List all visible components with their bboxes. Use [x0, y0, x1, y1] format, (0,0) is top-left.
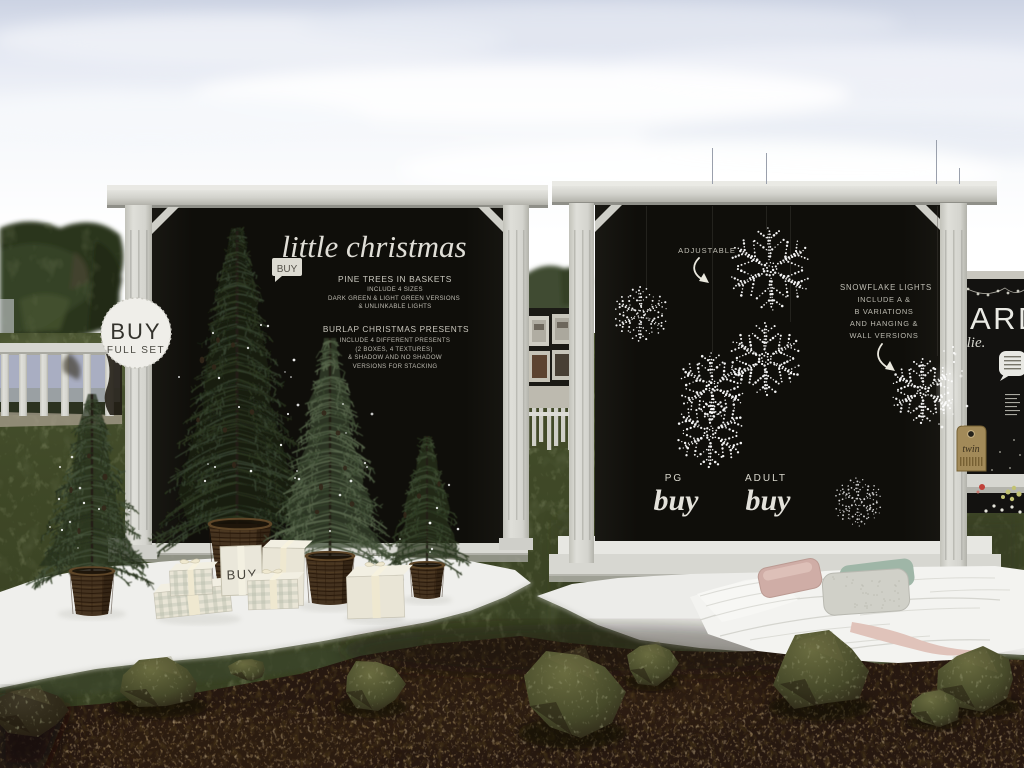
svg-text:WALL VERSIONS: WALL VERSIONS: [850, 331, 919, 340]
svg-text:little christmas: little christmas: [281, 229, 466, 264]
svg-text:INCLUDE 4 DIFFERENT PRESENTS: INCLUDE 4 DIFFERENT PRESENTS: [340, 337, 451, 344]
svg-text:BUY: BUY: [110, 319, 161, 344]
svg-text:& UNLINKABLE LIGHTS: & UNLINKABLE LIGHTS: [358, 303, 431, 310]
svg-text:DARK GREEN & LIGHT GREEN VERSI: DARK GREEN & LIGHT GREEN VERSIONS: [328, 295, 460, 302]
svg-text:BUY: BUY: [277, 264, 298, 275]
svg-text:(2 BOXES, 4 TEXTURES): (2 BOXES, 4 TEXTURES): [355, 346, 432, 353]
svg-text:AND HANGING &: AND HANGING &: [850, 319, 918, 328]
svg-text:PINE TREES IN BASKETS: PINE TREES IN BASKETS: [338, 274, 452, 284]
svg-text:lie.: lie.: [967, 335, 986, 351]
svg-text:SNOWFLAKE LIGHTS: SNOWFLAKE LIGHTS: [840, 283, 932, 292]
svg-text:ADULT: ADULT: [745, 473, 787, 484]
svg-text:B VARIATIONS: B VARIATIONS: [854, 307, 913, 316]
svg-text:INCLUDE 4 SIZES: INCLUDE 4 SIZES: [367, 286, 423, 293]
svg-text:buy: buy: [746, 484, 792, 517]
svg-text:BURLAP CHRISTMAS PRESENTS: BURLAP CHRISTMAS PRESENTS: [323, 324, 469, 334]
svg-text:INCLUDE A &: INCLUDE A &: [857, 295, 910, 304]
svg-text:buy: buy: [654, 484, 700, 517]
svg-text:FULL SET: FULL SET: [107, 345, 165, 356]
svg-text:ADJUSTABLE: ADJUSTABLE: [678, 246, 736, 255]
svg-text:PG: PG: [665, 473, 683, 484]
svg-text:& SHADOW AND NO SHADOW: & SHADOW AND NO SHADOW: [348, 354, 442, 361]
svg-text:VERSIONS FOR STACKING: VERSIONS FOR STACKING: [353, 363, 438, 370]
svg-text:twin: twin: [962, 444, 979, 455]
